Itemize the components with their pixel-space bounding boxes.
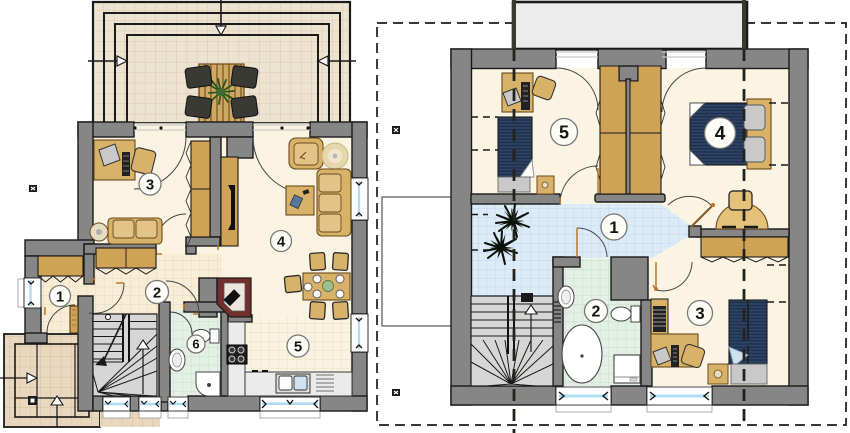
- svg-text:3: 3: [695, 304, 704, 323]
- svg-text:4: 4: [715, 124, 726, 145]
- svg-text:2: 2: [592, 304, 601, 321]
- svg-text:2: 2: [153, 284, 161, 301]
- svg-text:6: 6: [192, 337, 199, 352]
- svg-text:5: 5: [294, 338, 302, 355]
- svg-text:1: 1: [609, 218, 618, 237]
- svg-text:5: 5: [559, 122, 569, 142]
- svg-text:4: 4: [277, 233, 286, 250]
- svg-text:1: 1: [56, 288, 64, 305]
- svg-text:3: 3: [146, 176, 154, 193]
